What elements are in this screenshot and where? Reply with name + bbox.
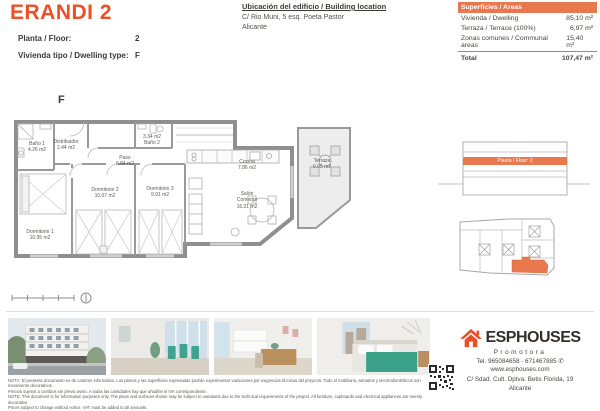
row-label: Vivienda / Dwelling <box>461 15 518 22</box>
dwelling-type-row: Vivienda tipo / Dwelling type: F <box>18 51 248 60</box>
room-label-bano2: 3.34 m2Baño 2 <box>137 134 167 147</box>
key-plan-diagram <box>450 210 595 285</box>
row-label: Terraza / Terrace (100%) <box>461 25 536 32</box>
brand-tagline: Promotora <box>494 349 547 356</box>
table-row: Vivienda / Dwelling 85,10 m² <box>458 13 597 23</box>
row-label: Zonas comunes / Communal areas <box>461 35 566 49</box>
disclaimer-en-line2: Prices subject to change without notice.… <box>8 405 436 410</box>
row-value: 6,97 m² <box>570 25 593 32</box>
floor-label: Planta / Floor: <box>18 34 135 43</box>
dwelling-type-value: F <box>135 51 140 60</box>
website-link[interactable]: www.esphouses.com <box>490 367 549 374</box>
room-label-paso: Paso6.84 m2 <box>110 155 140 168</box>
house-icon <box>459 328 483 348</box>
whatsapp-icon: ✆ <box>558 358 563 365</box>
esphouses-logo: ESPHOUSES <box>459 328 580 348</box>
floor-plan: Baño 14.26 m2 Distribuidor2.44 m2 3.34 m… <box>10 106 355 306</box>
row-value: 85,10 m² <box>566 15 593 22</box>
developer-brand-block: ESPHOUSES Promotora Tel. 965084658 - 671… <box>443 328 597 393</box>
dwelling-type-label: Vivienda tipo / Dwelling type: <box>18 51 135 60</box>
areas-table: Superficies / Areas Vivienda / Dwelling … <box>458 2 597 63</box>
office-city: Alicante <box>509 386 531 393</box>
room-label-dormitorio3: Dormitorio 39.91 m2 <box>138 186 182 199</box>
building-elevation-diagram <box>438 138 593 198</box>
table-total-row: Total 107,47 m² <box>458 52 597 63</box>
room-label-cocina: Cocina7.86 m2 <box>227 159 267 172</box>
location-heading: Ubicación del edificio / Building locati… <box>242 2 447 11</box>
section-divider <box>6 311 594 312</box>
office-address: C/ Sdad. Cult. Dptva. Betis Florida, 19 <box>467 377 573 384</box>
row-value: 15,40 m² <box>566 35 593 49</box>
location-city: Alicante <box>242 23 447 33</box>
dwelling-letter: F <box>58 94 65 106</box>
photo-bedroom <box>317 318 430 375</box>
building-location-block: Ubicación del edificio / Building locati… <box>242 2 447 33</box>
location-address: C/ Rio Muni, 5 esq. Poeta Pastor <box>242 13 447 23</box>
page-title: ERANDI 2 <box>10 1 112 25</box>
room-label-dormitorio2: Dormitorio 210.07 m2 <box>83 187 127 200</box>
photo-living-dining <box>111 318 209 375</box>
photo-kitchen-living <box>214 318 312 375</box>
floor-spec-row: Planta / Floor: 2 <box>18 34 248 43</box>
room-label-dormitorio1: Dormitorio 110.95 m2 <box>18 229 62 242</box>
brand-name: ESPHOUSES <box>485 329 580 347</box>
table-row: Zonas comunes / Communal areas 15,40 m² <box>458 33 597 52</box>
disclaimer-es-line1: NOTA: El presente documento es de caráct… <box>8 378 436 389</box>
total-label: Total <box>461 55 477 62</box>
legal-disclaimer: NOTA: El presente documento es de caráct… <box>8 378 436 411</box>
table-row: Terraza / Terrace (100%) 6,97 m² <box>458 23 597 33</box>
phone-line: Tel. 965084658 - 671467885 ✆ <box>476 359 563 366</box>
total-value: 107,47 m² <box>562 55 593 62</box>
scale-bar <box>12 293 91 303</box>
photo-building-exterior <box>8 318 106 375</box>
room-label-terraza: Terraza6.03 m2 <box>302 158 342 171</box>
room-label-salon: SalónComedor16.21 m2 <box>227 191 267 210</box>
room-label-distribuidor: Distribuidor2.44 m2 <box>50 139 82 152</box>
room-label-bano1: Baño 14.26 m2 <box>22 141 52 154</box>
areas-table-header: Superficies / Areas <box>458 2 597 13</box>
floor-plan-drawing <box>10 106 355 306</box>
floor-value: 2 <box>135 34 139 43</box>
elevation-floor-band: Planta / Floor: 2 <box>463 157 567 165</box>
